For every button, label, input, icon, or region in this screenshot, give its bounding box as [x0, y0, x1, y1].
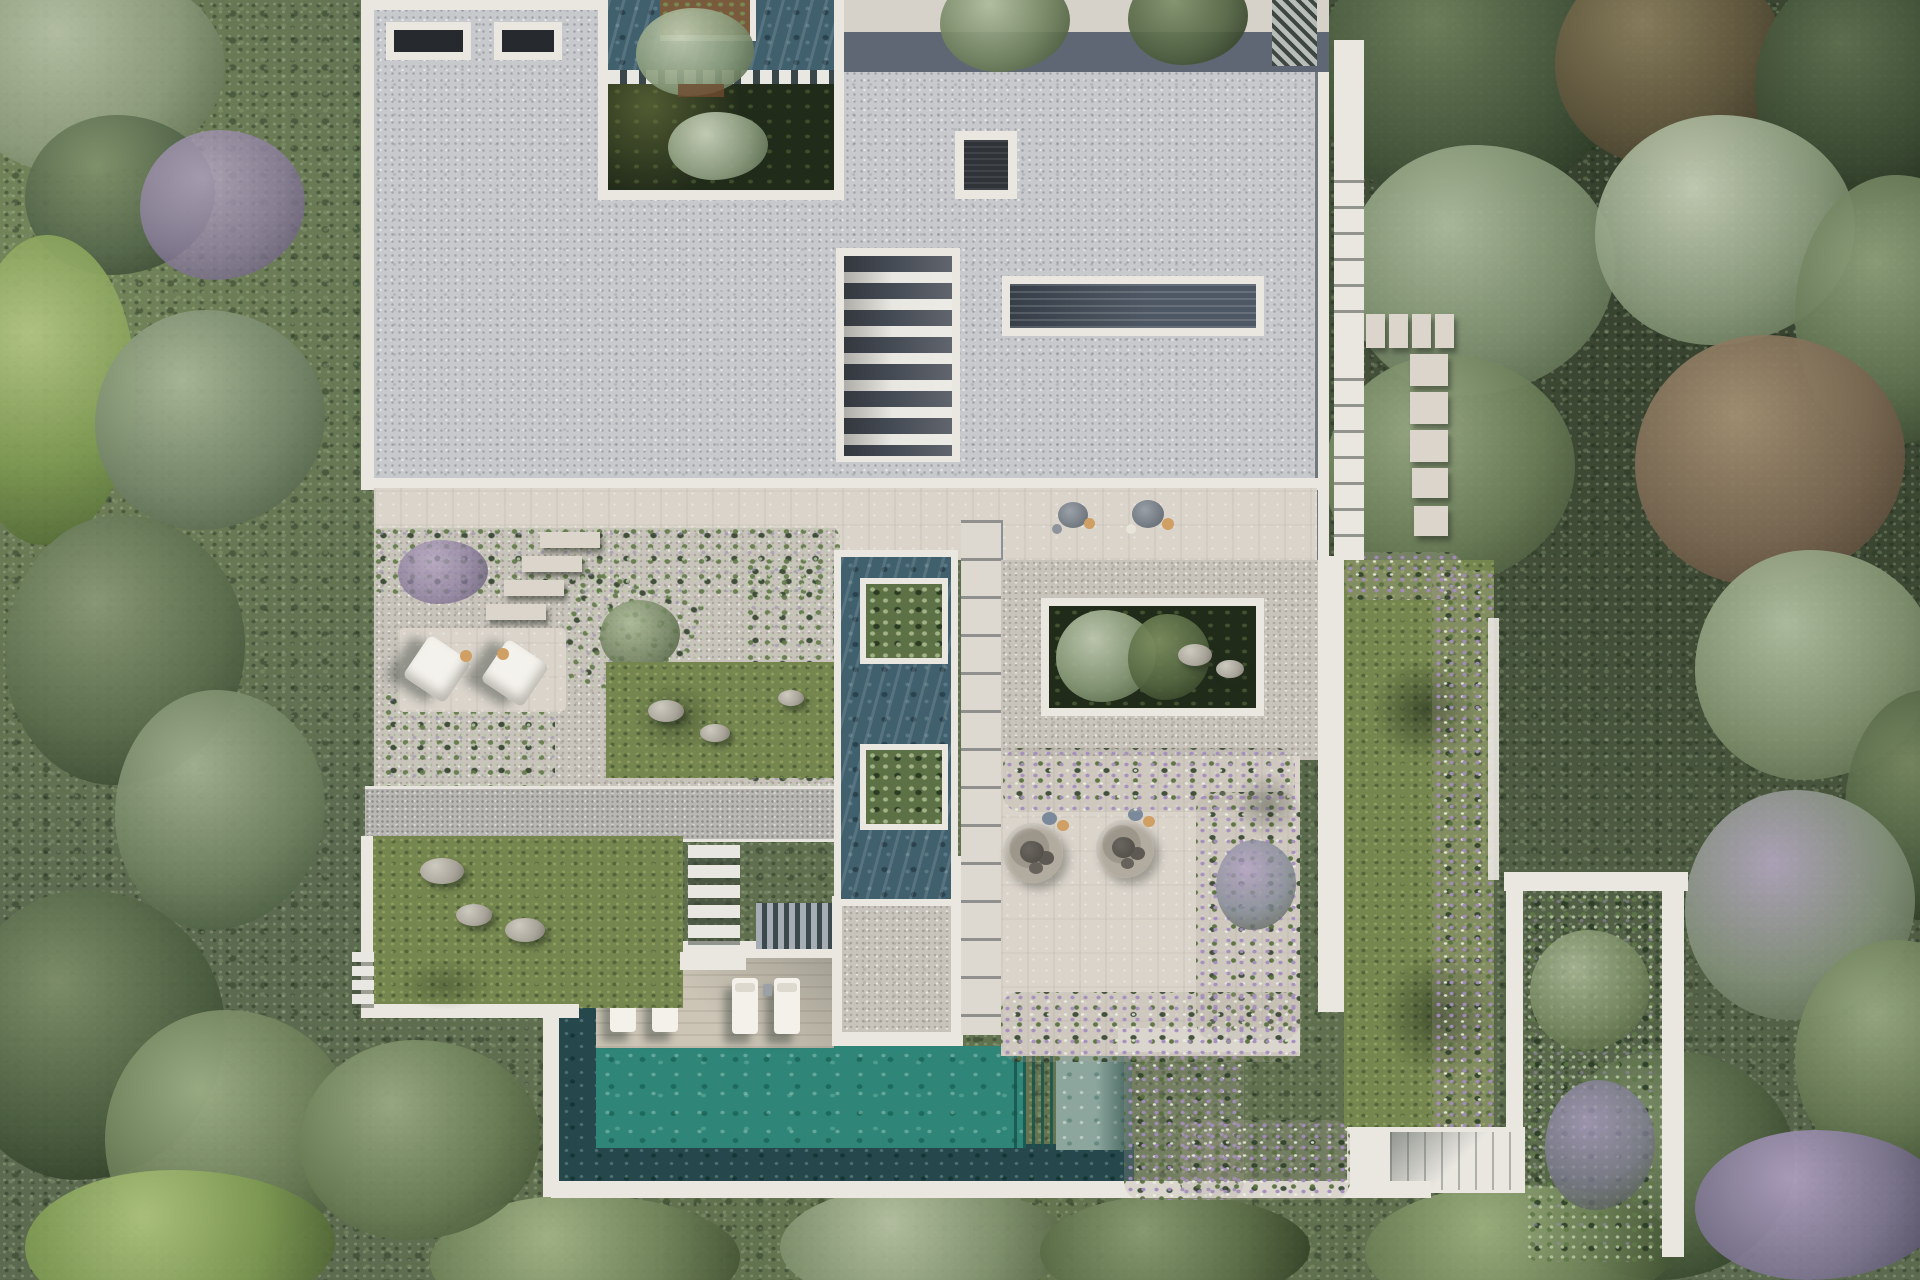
east-slat-path-treads — [1334, 378, 1364, 560]
lounge-cushion — [1143, 816, 1155, 827]
garden-path — [1504, 872, 1688, 891]
garden-slab — [486, 604, 546, 620]
east-slat-path-treads — [1334, 180, 1364, 315]
tree-shadow — [380, 950, 510, 1020]
boulder — [420, 858, 464, 884]
aerial-site-view — [0, 0, 1920, 1280]
garden-path — [1662, 872, 1684, 1257]
flowering-shrubs — [1180, 1120, 1350, 1200]
chair-cushion — [1084, 518, 1095, 529]
sun-lounger — [774, 978, 800, 1034]
garden-slab — [504, 580, 564, 596]
north-shadow-band — [844, 32, 1329, 72]
roof-parapet-east — [1317, 0, 1329, 560]
lounge-cushion — [1042, 812, 1057, 825]
louver-bridge-slats — [756, 903, 834, 949]
fire-pit-lounge — [1096, 820, 1154, 878]
garden-slab — [522, 556, 582, 572]
stepping-stone — [1412, 314, 1431, 348]
sun-lounger — [732, 978, 758, 1034]
boulder — [505, 918, 545, 942]
chair-cushion — [1162, 518, 1174, 530]
stepping-stone — [1412, 468, 1448, 498]
stepping-stone — [1410, 354, 1448, 386]
stepping-stone-run — [1366, 312, 1456, 350]
flowering-canopy — [1695, 1130, 1920, 1280]
boulder — [700, 724, 730, 742]
louver-skylight-glass — [1010, 284, 1256, 328]
lounge-cushion — [1057, 820, 1069, 831]
skylight-glass — [394, 30, 463, 52]
gravel-court — [842, 898, 952, 1034]
stepping-stone — [1410, 430, 1448, 462]
skylight-glass — [964, 140, 1008, 190]
courtyard-rock — [1216, 660, 1244, 678]
stepping-stone — [1366, 314, 1385, 348]
courtyard-soil — [678, 84, 724, 97]
boulder — [648, 700, 684, 722]
walk-lane — [961, 520, 1003, 1035]
gravel-band — [365, 786, 838, 842]
terrace-flower-border — [1001, 992, 1301, 1062]
stepping-stone — [1414, 506, 1448, 536]
lawn-flower-border — [1432, 570, 1494, 1130]
boulder — [456, 904, 492, 926]
stair-skylight-shading — [844, 256, 952, 456]
stepping-stone — [1389, 314, 1408, 348]
skylight-glass — [502, 30, 554, 52]
dining-set — [1122, 492, 1192, 542]
garden-path — [1318, 556, 1344, 1012]
boulder — [778, 690, 804, 706]
stair-landing — [680, 952, 746, 970]
path-edge — [832, 1032, 963, 1046]
chair — [1126, 524, 1136, 534]
dining-set — [1050, 496, 1112, 542]
tree-shadow — [1222, 760, 1312, 850]
garden-stairs — [688, 845, 740, 947]
stepping-stone — [1435, 314, 1454, 348]
fire-pit-lounge — [1003, 823, 1063, 883]
parasol — [1132, 500, 1164, 528]
swimming-pool-water — [596, 1046, 1026, 1148]
courtyard-rock — [1178, 644, 1212, 666]
roof-parapet-west — [361, 0, 374, 490]
stepping-stone — [1410, 392, 1448, 424]
garden-path — [1506, 890, 1523, 1128]
chair — [1052, 524, 1062, 534]
pool-planter — [860, 744, 948, 830]
lawn-side-steps — [352, 952, 374, 1008]
north-hatched-grate — [1272, 0, 1317, 66]
path-edge — [832, 896, 842, 1046]
stool-cushion — [497, 648, 509, 660]
garden-path — [1488, 618, 1499, 880]
stool-cushion — [460, 650, 472, 662]
pool-overflow-edge — [559, 1144, 1134, 1184]
roof-edge-line — [1315, 0, 1318, 560]
side-table — [763, 984, 772, 996]
garden-slab — [540, 532, 600, 548]
pool-planter — [860, 578, 948, 664]
